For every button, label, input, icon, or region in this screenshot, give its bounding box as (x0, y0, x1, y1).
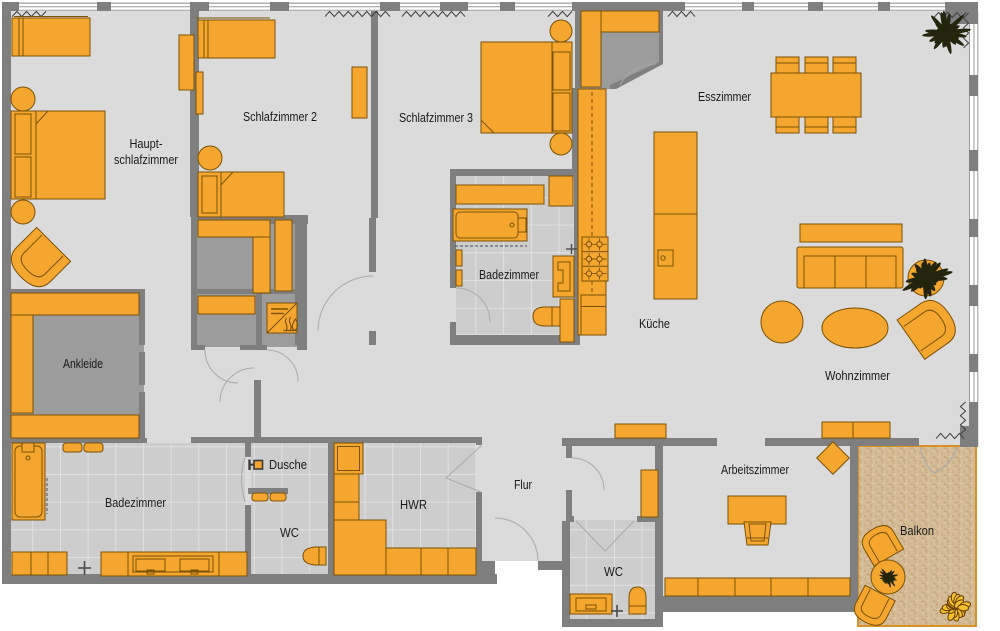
svg-text:WC: WC (280, 525, 299, 540)
svg-text:Balkon: Balkon (900, 523, 934, 538)
svg-text:Badezimmer: Badezimmer (479, 267, 540, 282)
svg-text:HWR: HWR (400, 497, 427, 512)
svg-text:Badezimmer: Badezimmer (105, 495, 167, 510)
svg-text:Esszimmer: Esszimmer (698, 89, 752, 104)
svg-text:Wohnzimmer: Wohnzimmer (825, 368, 891, 383)
svg-text:WC: WC (604, 564, 623, 579)
svg-text:Ankleide: Ankleide (63, 356, 103, 371)
svg-text:Dusche: Dusche (269, 457, 307, 472)
svg-text:Schlafzimmer 3: Schlafzimmer 3 (399, 110, 473, 125)
svg-text:Küche: Küche (639, 316, 670, 331)
svg-text:Flur: Flur (514, 477, 533, 492)
svg-text:Arbeitszimmer: Arbeitszimmer (721, 462, 790, 477)
svg-text:Schlafzimmer 2: Schlafzimmer 2 (243, 109, 317, 124)
